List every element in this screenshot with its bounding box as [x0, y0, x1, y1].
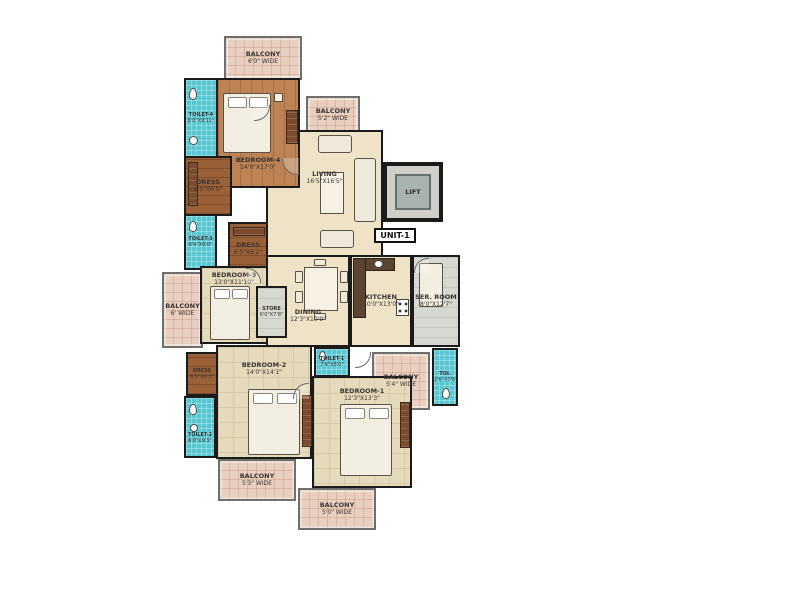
- room-label: TOILET-46'0"X9'11": [186, 112, 216, 125]
- room-label: BEDROOM-112'3"X13'3": [314, 387, 410, 403]
- dining-chair: [295, 271, 303, 283]
- dining-chair: [295, 291, 303, 303]
- sofa: [318, 135, 352, 153]
- room-toilet-4: TOILET-46'0"X9'11": [184, 78, 218, 158]
- balcony-label: BALCONY5'3" WIDE: [220, 472, 294, 488]
- balcony-living: BALCONY5'2" WIDE: [306, 96, 360, 134]
- pillow: [214, 289, 230, 299]
- toilet-sink: [189, 136, 198, 145]
- room-label: TOILET-26'0"X9'3": [186, 432, 214, 445]
- room-bedroom-2: BEDROOM-214'0"X14'1": [216, 345, 312, 459]
- wardrobe: [400, 402, 410, 448]
- room-kitchen: KITCHEN10'0"X13'0": [350, 255, 412, 347]
- coffee-table: [320, 172, 344, 214]
- lift-shaft: LIFT: [383, 162, 443, 222]
- room-toilet-3: TOILET-38'4"X6'0": [184, 214, 217, 270]
- bed: [340, 404, 392, 476]
- room-toilet-1: TOILET-17'4"X6'0": [314, 347, 350, 377]
- room-label: DRESS6'0"X6'3": [188, 368, 216, 381]
- room-label: STORE6'0"X7'8": [258, 306, 285, 319]
- unit-badge: UNIT-1: [374, 228, 416, 243]
- dining-chair: [314, 313, 326, 320]
- pillow: [228, 97, 247, 108]
- unit-badge-label: UNIT-1: [380, 231, 409, 240]
- wardrobe: [286, 110, 298, 144]
- balcony-bottom-center: BALCONY5'0" WIDE: [298, 488, 376, 530]
- room-toi-servant: TOI.2'6"X7'6": [432, 348, 458, 406]
- pillow: [232, 289, 248, 299]
- toilet-wc: [189, 221, 197, 232]
- balcony-label: BALCONY5'2" WIDE: [308, 107, 358, 123]
- balcony-label: BALCONY6' WIDE: [164, 302, 201, 318]
- toilet-wc: [189, 404, 197, 415]
- room-toilet-2: TOILET-26'0"X9'3": [184, 396, 216, 458]
- room-dress-4: DRESS6'0"X6'0": [184, 156, 232, 216]
- dining-table: [304, 267, 338, 311]
- room-label: BEDROOM-214'0"X14'1": [218, 361, 310, 377]
- sofa: [354, 158, 376, 222]
- room-label: TOILET-38'4"X6'0": [186, 236, 215, 249]
- room-store: STORE6'0"X7'8": [256, 286, 287, 338]
- balcony-label: BALCONY5'0" WIDE: [300, 501, 374, 517]
- toilet-sink: [190, 424, 198, 432]
- wardrobe: [302, 395, 312, 447]
- floor-plan-canvas: BALCONY6'0" WIDE BALCONY5'2" WIDE BALCON…: [0, 0, 800, 600]
- kitchen-counter: [353, 258, 366, 318]
- room-label: DRESS6'5"X6'2": [230, 241, 266, 257]
- bed: [223, 93, 271, 153]
- wardrobe: [233, 227, 265, 236]
- toilet-wc: [319, 351, 326, 361]
- balcony-label: BALCONY6'0" WIDE: [226, 50, 300, 66]
- dining-chair: [314, 259, 326, 266]
- dining-chair: [340, 271, 348, 283]
- balcony-bottom-left: BALCONY5'3" WIDE: [218, 459, 296, 501]
- lift-car: [395, 174, 431, 210]
- pillow: [253, 393, 273, 404]
- toilet-wc: [442, 388, 450, 399]
- side-table: [274, 93, 283, 102]
- pillow: [369, 408, 389, 419]
- balcony-left: BALCONY6' WIDE: [162, 272, 203, 348]
- toilet-wc: [189, 88, 197, 100]
- stove: [396, 299, 409, 316]
- door-arc: [355, 352, 371, 368]
- kitchen-sink: [374, 260, 383, 268]
- dining-chair: [340, 291, 348, 303]
- room-dress-2: DRESS6'0"X6'3": [186, 352, 218, 396]
- bed: [210, 286, 250, 340]
- sofa: [320, 230, 354, 248]
- pillow: [345, 408, 365, 419]
- wardrobe: [188, 162, 198, 206]
- room-label: TOI.2'6"X7'6": [434, 371, 456, 384]
- balcony-top: BALCONY6'0" WIDE: [224, 36, 302, 80]
- room-bedroom-1: BEDROOM-112'3"X13'3": [312, 376, 412, 488]
